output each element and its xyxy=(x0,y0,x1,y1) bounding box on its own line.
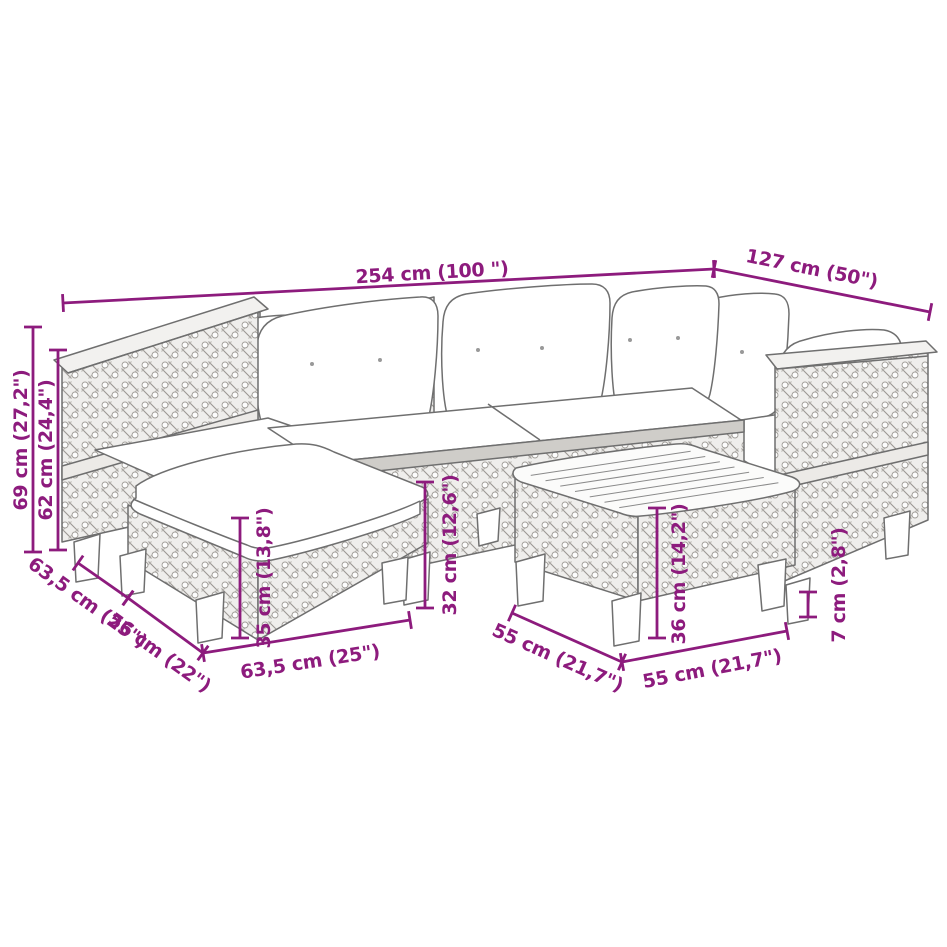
dimension-end-cap xyxy=(785,622,788,640)
ottoman-leg-1 xyxy=(120,549,146,596)
dimension-label-table-depth: 55 cm (21,7") xyxy=(489,619,627,696)
sofa-base-leg-2 xyxy=(477,508,500,546)
dimension-label-total-depth: 127 cm (50") xyxy=(744,245,880,293)
dimension-end-cap xyxy=(928,303,932,321)
dimension-label-ottoman-height: 35 cm (13,8") xyxy=(253,508,275,649)
dimension-end-cap xyxy=(620,653,623,671)
dimension-label-table-width: 55 cm (21,7") xyxy=(641,645,784,693)
ottoman-leg-3 xyxy=(382,557,408,604)
table-leg-1 xyxy=(516,554,545,606)
sofa-set-line-art: 254 cm (100 ")127 cm (50")69 cm (27,2")6… xyxy=(0,0,947,947)
dimension-end-cap xyxy=(63,294,64,312)
dimension-label-back-height: 69 cm (27,2") xyxy=(10,370,32,511)
ottoman-leg-2 xyxy=(196,592,224,643)
dimension-end-cap xyxy=(202,644,205,662)
dimension-table-width: 55 cm (21,7") xyxy=(620,622,788,693)
product-dimension-diagram: 254 cm (100 ")127 cm (50")69 cm (27,2")6… xyxy=(0,0,947,947)
table-leg-2 xyxy=(612,593,641,646)
dimension-table-depth: 55 cm (21,7") xyxy=(489,605,627,697)
right-armrest-leg-1 xyxy=(884,511,910,559)
dimension-label-seat-height: 32 cm (12,6") xyxy=(439,475,461,616)
table-leg-3 xyxy=(758,559,786,611)
dimension-label-total-width: 254 cm (100 ") xyxy=(355,258,509,289)
dimension-end-cap xyxy=(409,611,412,629)
dimension-label-armrest-height: 62 cm (24,4") xyxy=(35,380,57,521)
dimension-label-small-height: 7 cm (2,8") xyxy=(828,527,850,642)
dimension-label-table-height: 36 cm (14,2") xyxy=(668,504,690,645)
